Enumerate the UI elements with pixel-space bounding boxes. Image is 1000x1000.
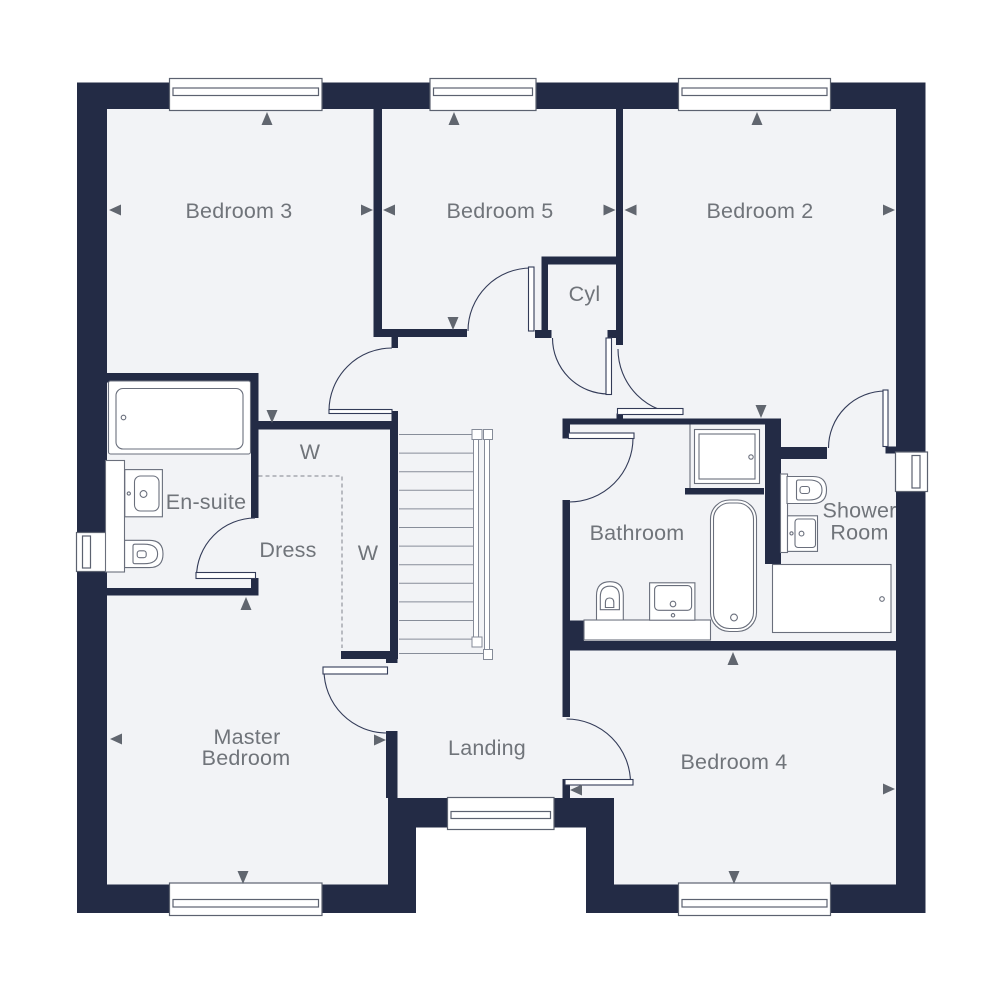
svg-text:W: W xyxy=(300,440,321,464)
svg-text:Cyl: Cyl xyxy=(569,282,601,306)
svg-text:Bedroom 3: Bedroom 3 xyxy=(186,199,293,223)
svg-text:Bathroom: Bathroom xyxy=(590,521,685,545)
svg-text:Room: Room xyxy=(830,521,888,545)
svg-text:Bedroom 4: Bedroom 4 xyxy=(681,750,788,774)
svg-text:En-suite: En-suite xyxy=(166,490,246,514)
svg-text:W: W xyxy=(358,541,379,565)
svg-text:Shower: Shower xyxy=(822,499,896,523)
svg-text:Dress: Dress xyxy=(259,538,316,562)
svg-text:Landing: Landing xyxy=(448,736,526,760)
svg-text:Bedroom 5: Bedroom 5 xyxy=(447,199,554,223)
svg-text:Bedroom 2: Bedroom 2 xyxy=(707,199,814,223)
svg-text:Bedroom: Bedroom xyxy=(202,746,291,770)
